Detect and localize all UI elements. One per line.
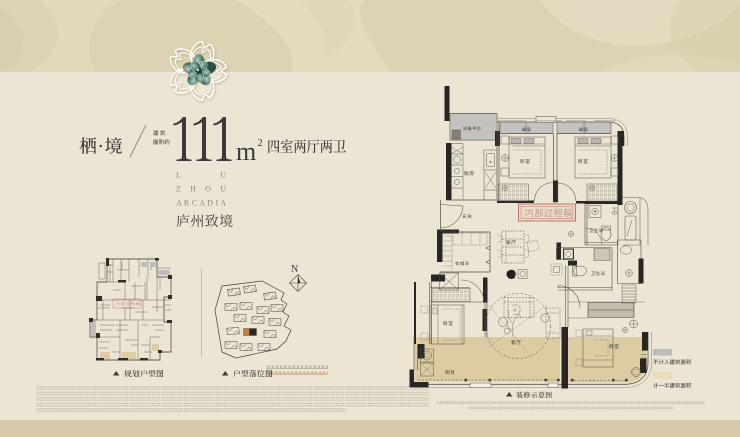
- svg-text:N: N: [291, 264, 298, 275]
- svg-text:2: 2: [258, 138, 263, 149]
- svg-text:m: m: [236, 137, 256, 166]
- svg-text:A R C A D I A: A R C A D I A: [176, 199, 226, 208]
